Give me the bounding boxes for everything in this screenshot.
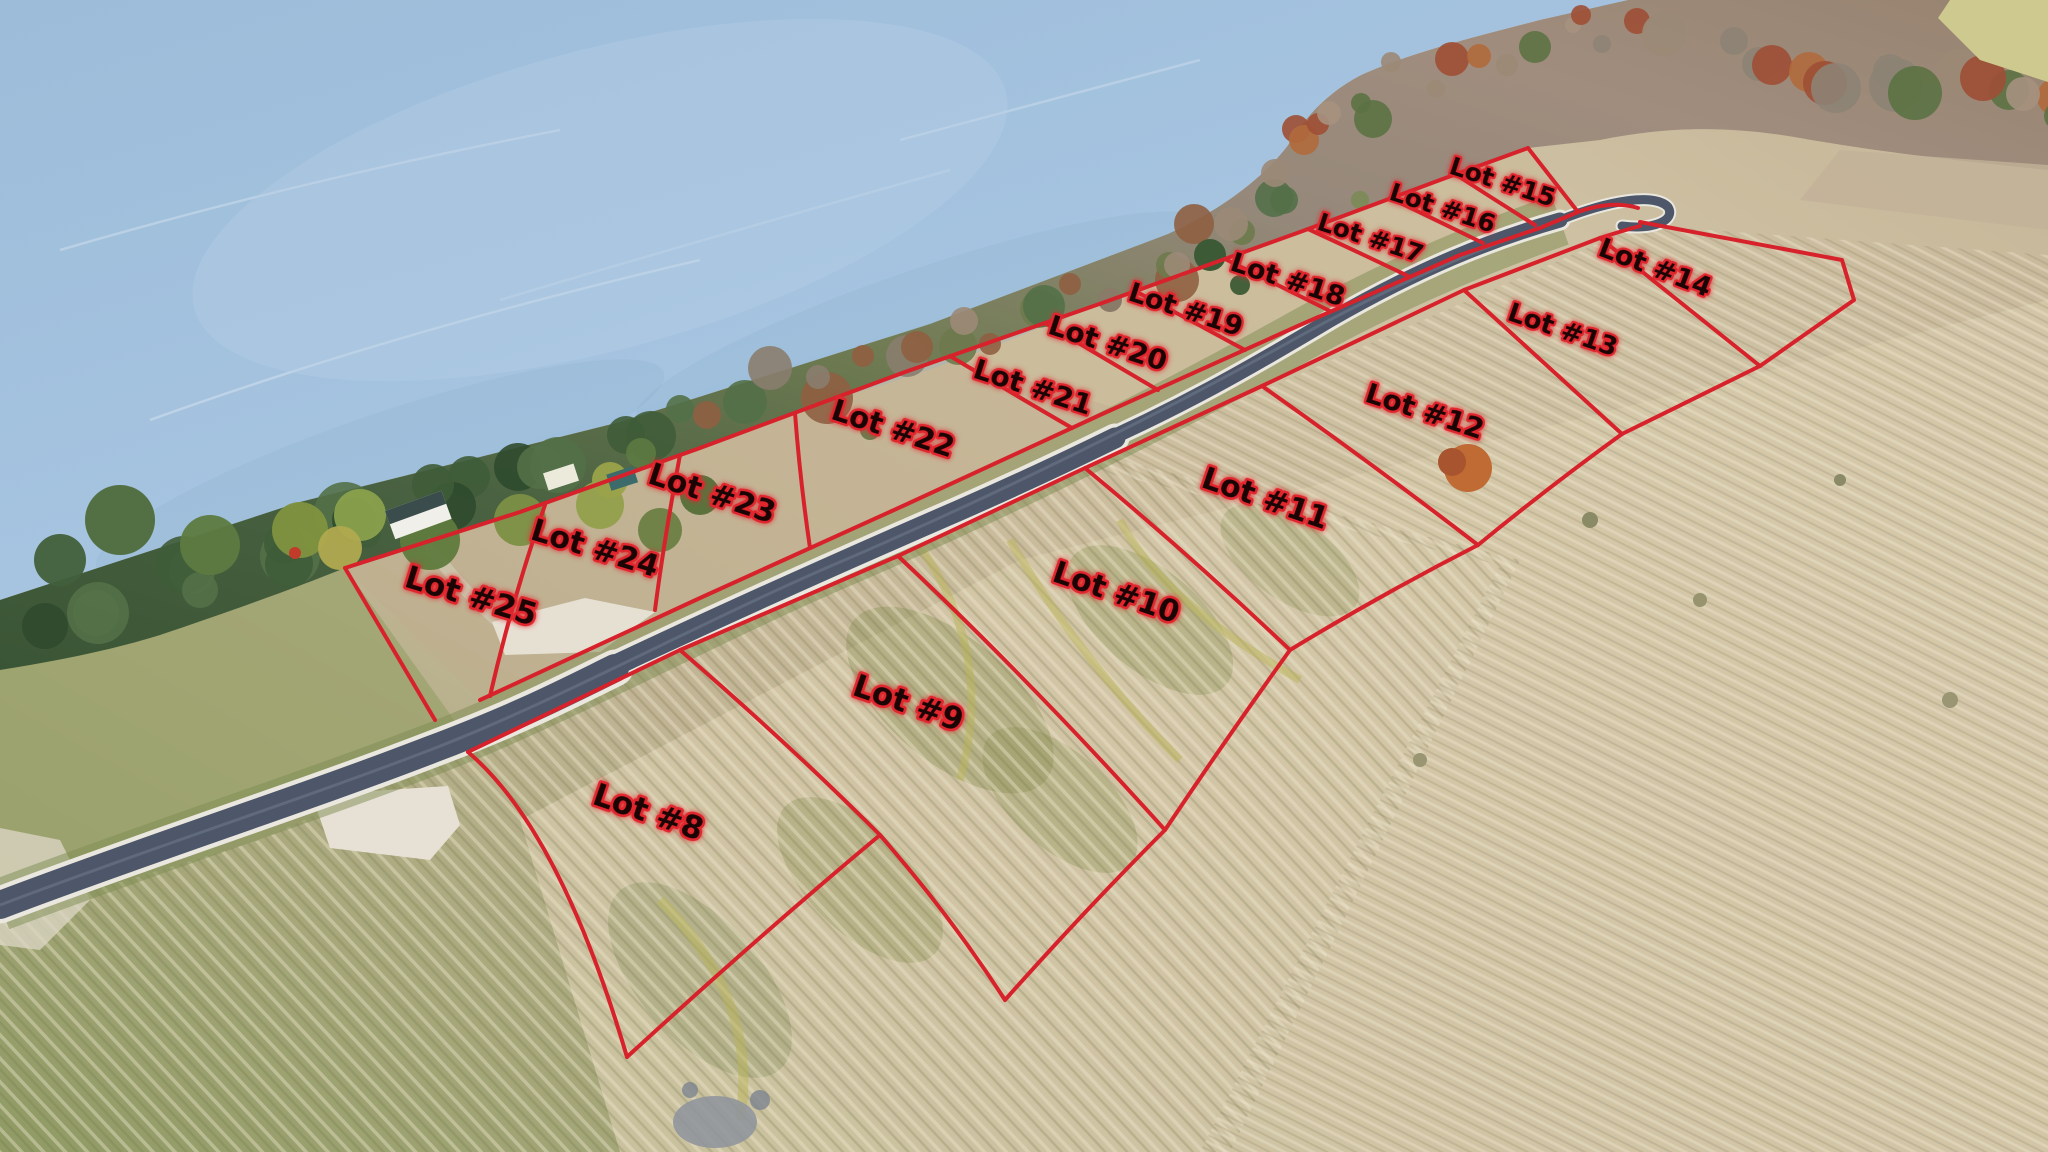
aerial-photo: Lot #8Lot #9Lot #10Lot #11Lot #12Lot #13…: [0, 0, 2048, 1152]
red-equipment: [289, 547, 301, 559]
aerial-lot-map: Lot #8Lot #9Lot #10Lot #11Lot #12Lot #13…: [0, 0, 2048, 1152]
